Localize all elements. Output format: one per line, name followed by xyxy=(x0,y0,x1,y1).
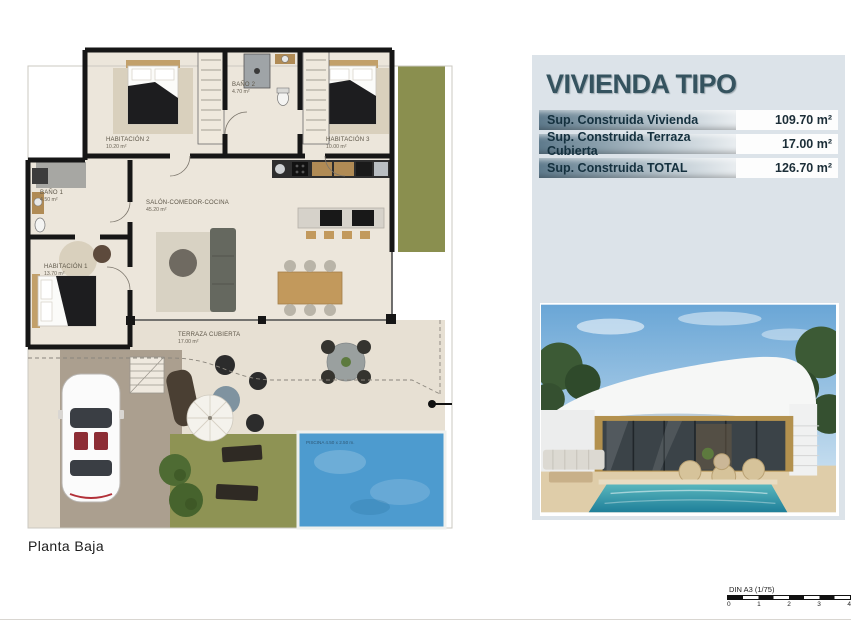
room-area: 10.20 m² xyxy=(106,144,127,150)
page-divider xyxy=(0,619,851,620)
plan-name: Planta Baja xyxy=(28,538,104,554)
info-panel: VIVIENDA TIPO Sup. Construida Vivienda 1… xyxy=(532,55,845,520)
surface-row-label: Sup. Construida Vivienda xyxy=(539,110,736,130)
scale-tick: 4 xyxy=(847,601,851,608)
scale-tick: 0 xyxy=(727,601,731,608)
room-area: 4.70 m² xyxy=(232,89,250,95)
scale-tick: 2 xyxy=(787,601,791,608)
scale-label: DIN A3 (1/75) xyxy=(729,585,851,594)
page-title: VIVIENDA TIPO xyxy=(546,69,845,100)
room-label: SALÓN-COMEDOR-COCINA xyxy=(146,199,229,206)
room-area: 10.00 m² xyxy=(326,144,347,150)
surface-row: Sup. Construida Vivienda 109.70 m² xyxy=(539,110,838,130)
garden-strip xyxy=(398,66,445,252)
page: PISCINA 4.50 x 2.50 m. xyxy=(0,0,851,625)
scale-tick: 1 xyxy=(757,601,761,608)
stairs xyxy=(130,357,164,393)
car xyxy=(58,374,124,502)
room-label: HABITACIÓN 1 xyxy=(44,263,88,270)
floor-plan: PISCINA 4.50 x 2.50 m. xyxy=(20,42,455,534)
living-furniture xyxy=(156,228,236,312)
outdoor-table xyxy=(321,340,371,384)
dining-set xyxy=(278,260,342,316)
room-label: HABITACIÓN 3 xyxy=(326,136,370,143)
room-label: HABITACIÓN 2 xyxy=(106,136,150,143)
room-area: 13.70 m² xyxy=(44,271,65,277)
room-area: 17.00 m² xyxy=(178,339,199,345)
villa-render-image xyxy=(541,304,836,513)
bed-hab2 xyxy=(113,60,193,134)
room-area: 45.20 m² xyxy=(146,207,167,213)
room-label: BAÑO 2 xyxy=(232,81,256,88)
surface-row-value: 126.70 m² xyxy=(736,158,838,178)
floor-plan-drawing: PISCINA 4.50 x 2.50 m. xyxy=(20,42,455,534)
scale-tick: 3 xyxy=(817,601,821,608)
room-area: 4.50 m² xyxy=(40,197,58,203)
room-label: BAÑO 1 xyxy=(40,189,64,196)
villa-render xyxy=(540,303,839,516)
wardrobe-hab3 xyxy=(303,52,329,144)
umbrella-icon xyxy=(187,395,233,441)
pool: PISCINA 4.50 x 2.50 m. xyxy=(298,432,445,528)
surface-row-value: 17.00 m² xyxy=(736,134,838,154)
surface-row: Sup. Construida Terraza Cubierta 17.00 m… xyxy=(539,134,838,154)
render-pool xyxy=(589,480,788,513)
pool-label: PISCINA 4.50 x 2.50 m. xyxy=(306,440,355,445)
surface-row: Sup. Construida TOTAL 126.70 m² xyxy=(539,158,838,178)
room-label: TERRAZA CUBIERTA xyxy=(178,332,240,338)
scale-bar: DIN A3 (1/75) 0 1 2 3 4 xyxy=(727,585,851,608)
surface-row-value: 109.70 m² xyxy=(736,110,838,130)
surface-row-label: Sup. Construida Terraza Cubierta xyxy=(539,134,736,154)
wardrobe-hab2 xyxy=(198,52,224,144)
scale-ticks: 0 1 2 3 4 xyxy=(727,601,851,608)
scale-bar-ruler xyxy=(727,595,851,600)
surface-row-label: Sup. Construida TOTAL xyxy=(539,158,736,178)
kitchen-counter xyxy=(272,160,390,178)
